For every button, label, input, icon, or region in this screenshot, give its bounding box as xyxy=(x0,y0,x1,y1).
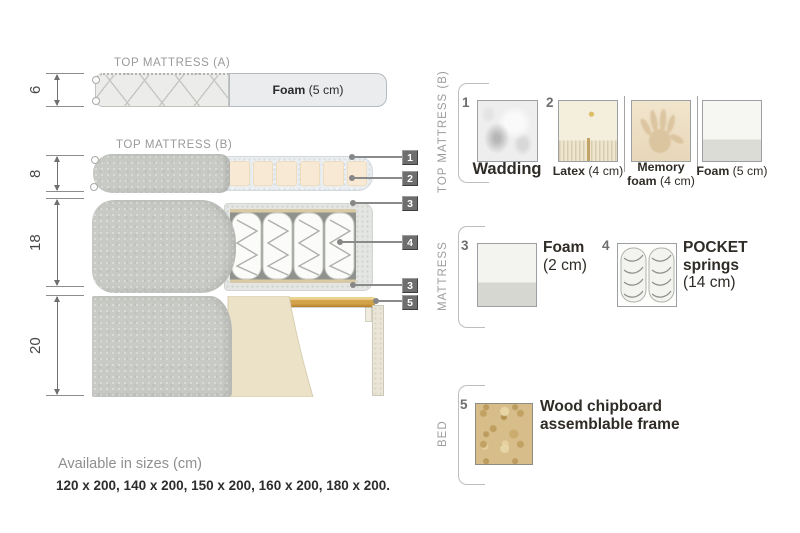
fabric-cover-b xyxy=(93,154,230,193)
foam-a-label-rest: (5 cm) xyxy=(305,83,343,97)
hand-imprint-icon xyxy=(632,101,690,161)
foam5-caption-bold: Foam xyxy=(696,164,729,178)
latex-block xyxy=(300,161,321,186)
top-mattress-a-title: TOP MATTRESS (A) xyxy=(114,57,230,69)
bed-diagram xyxy=(92,296,388,397)
latex-caption-bold: Latex xyxy=(553,164,585,178)
foam5-caption: Foam (5 cm) xyxy=(690,165,774,179)
legend-num-1: 1 xyxy=(462,95,470,110)
latex-slit xyxy=(587,138,590,161)
foam2-caption-line2: (2 cm) xyxy=(543,257,587,275)
arrow-up-icon xyxy=(54,296,60,302)
leader-line xyxy=(340,241,402,243)
arrow-up-icon xyxy=(54,156,60,162)
latex-caption-rest: (4 cm) xyxy=(585,164,623,178)
pocket-caption-line3: (14 cm) xyxy=(683,274,748,292)
legend-num-3: 3 xyxy=(461,238,469,253)
callout-5: 5 xyxy=(402,295,418,310)
foam5-caption-rest: (5 cm) xyxy=(729,164,767,178)
legend-divider xyxy=(697,96,698,172)
latex-caption: Latex (4 cm) xyxy=(546,165,630,179)
dim-tick xyxy=(46,155,84,156)
piping-button xyxy=(92,97,100,105)
callout-1: 1 xyxy=(402,150,418,165)
latex-image xyxy=(558,100,618,162)
wood-frame-caption: Wood chipboard assemblable frame xyxy=(540,398,680,433)
piping-button xyxy=(92,76,100,84)
latex-block xyxy=(347,161,368,186)
arrow-down-icon xyxy=(54,100,60,106)
section-label-bed: BED xyxy=(433,385,453,483)
dim-tick xyxy=(46,73,84,74)
top-mattress-b-title: TOP MATTRESS (B) xyxy=(116,139,232,151)
dim-tick xyxy=(46,286,84,287)
dimension-20-value: 20 xyxy=(27,295,44,396)
leader-line xyxy=(377,300,402,302)
callout-3-top: 3 xyxy=(402,196,418,211)
latex-block xyxy=(323,161,344,186)
top-mattress-b-diagram xyxy=(93,154,375,193)
available-sizes-list: 120 x 200, 140 x 200, 150 x 200, 160 x 2… xyxy=(56,478,390,493)
arrow-up-icon xyxy=(54,199,60,205)
leader-line xyxy=(352,156,402,158)
dimension-8-value: 8 xyxy=(27,155,44,192)
fabric-cover-mattress xyxy=(92,200,236,293)
piping-button xyxy=(91,156,99,164)
bed-front-panel xyxy=(92,296,232,397)
arrow-up-icon xyxy=(54,74,60,80)
pocket-springs-image xyxy=(617,243,677,307)
section-label-mattress: MATTRESS xyxy=(433,226,453,326)
pocket-caption-line2: springs xyxy=(683,257,748,275)
dim-tick xyxy=(46,295,84,296)
dimension-6-value: 6 xyxy=(27,73,44,107)
foam2-caption-line1: Foam xyxy=(543,239,587,257)
callout-3-bottom: 3 xyxy=(402,278,418,293)
leader-line xyxy=(352,177,402,179)
dim-tick xyxy=(46,198,84,199)
wood-caption-line1: Wood chipboard xyxy=(540,398,680,416)
pocket-caption-line1: POCKET xyxy=(683,239,748,257)
legend-num-2: 2 xyxy=(546,95,554,110)
top-mattress-a-diagram: Foam (5 cm) xyxy=(95,73,387,107)
arrow-down-icon xyxy=(54,185,60,191)
callout-2: 2 xyxy=(402,171,418,186)
latex-blocks xyxy=(229,161,367,186)
mattress-construction-diagram: TOP MATTRESS (A) 6 Foam (5 cm) TOP MATTR… xyxy=(0,0,800,533)
pocket-springs-cutaway xyxy=(230,209,356,283)
memory-foam-image xyxy=(631,100,691,162)
callout-4: 4 xyxy=(402,235,418,250)
wadding-caption: Wadding xyxy=(462,163,552,177)
memory-caption-line1: Memory xyxy=(637,160,684,174)
latex-block xyxy=(229,161,250,186)
available-sizes-title: Available in sizes (cm) xyxy=(58,456,202,472)
piping-button xyxy=(90,183,98,191)
dim-tick xyxy=(46,106,84,107)
foam-a-label-bold: Foam xyxy=(272,83,305,97)
arrow-down-icon xyxy=(54,280,60,286)
mattress-diagram xyxy=(92,200,373,293)
chipboard-image xyxy=(475,403,533,465)
legend-num-4: 4 xyxy=(602,238,610,253)
legend-num-5: 5 xyxy=(460,397,468,412)
foam5-image xyxy=(702,100,762,162)
section-label-top-mattress-b: TOP MATTRESS (B) xyxy=(433,83,453,181)
leader-line xyxy=(353,284,402,286)
foam-layer-a: Foam (5 cm) xyxy=(229,73,387,107)
foam2-image xyxy=(477,243,537,307)
pocket-springs-caption: POCKET springs (14 cm) xyxy=(683,239,748,292)
dimension-18-value: 18 xyxy=(27,198,44,287)
foam2-caption: Foam (2 cm) xyxy=(543,239,587,274)
latex-block xyxy=(276,161,297,186)
latex-block xyxy=(253,161,274,186)
wadding-image xyxy=(477,100,538,162)
leader-line xyxy=(353,202,402,204)
memory-caption-line2-bold: foam xyxy=(627,174,656,188)
dim-tick xyxy=(46,191,84,192)
wood-caption-line2: assemblable frame xyxy=(540,416,680,434)
foam-a-label: Foam (5 cm) xyxy=(272,83,343,97)
quilted-cover xyxy=(95,73,229,107)
pocket-springs-icon xyxy=(618,244,676,306)
arrow-down-icon xyxy=(54,389,60,395)
dim-line xyxy=(57,297,58,394)
dim-tick xyxy=(46,395,84,396)
dim-line xyxy=(57,200,58,285)
